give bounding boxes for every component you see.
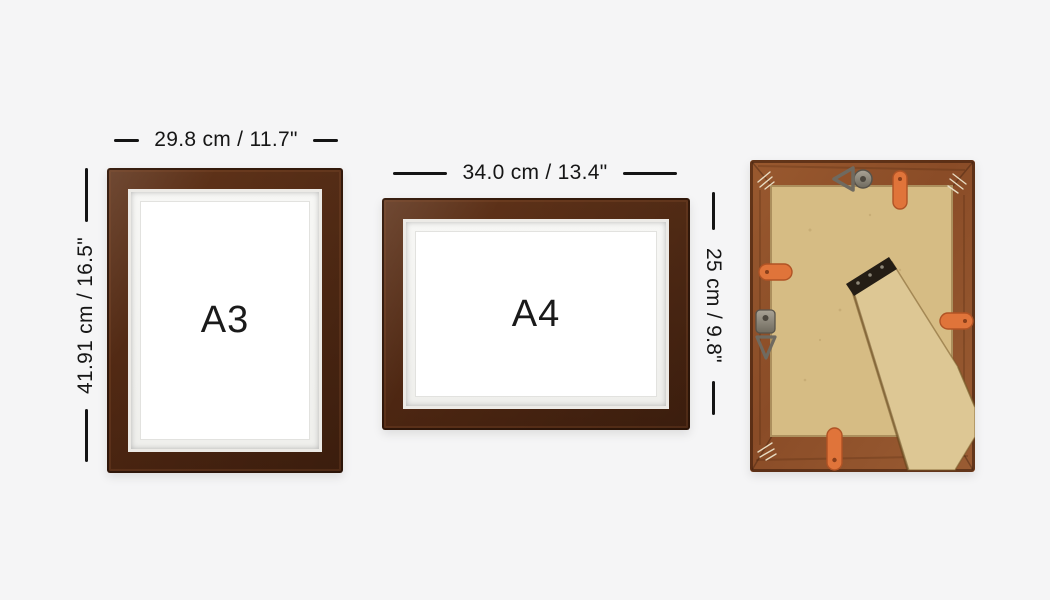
dimension-tick-top <box>712 192 715 230</box>
a3-frame-mat: A3 <box>131 192 319 449</box>
back-frame-graphic <box>750 160 975 472</box>
a4-frame: A4 <box>382 198 690 430</box>
a4-frame-mat: A4 <box>406 222 666 406</box>
dimension-dash-right <box>313 139 338 142</box>
a3-height-dimension: 41.91 cm / 16.5" <box>71 168 101 462</box>
a3-print-area: A3 <box>140 201 310 440</box>
a3-size-label: A3 <box>201 299 249 342</box>
a4-width-dimension: 34.0 cm / 13.4" <box>370 159 700 187</box>
a3-width-dimension: 29.8 cm / 11.7" <box>95 126 357 154</box>
a3-width-dimension-label: 29.8 cm / 11.7" <box>154 128 297 152</box>
a4-size-label: A4 <box>512 293 560 336</box>
dimension-dash-right <box>623 172 677 175</box>
dimension-tick-bottom <box>85 409 88 462</box>
flexi-clip-left <box>759 264 792 280</box>
a3-frame: A3 <box>107 168 343 473</box>
dimension-tick-top <box>85 168 88 222</box>
flexi-clip-bottom <box>827 428 842 470</box>
product-dimension-diagram: 29.8 cm / 11.7" 41.91 cm / 16.5" A3 34.0… <box>0 0 1050 600</box>
a3-height-dimension-label: 41.91 cm / 16.5" <box>74 222 98 409</box>
a4-print-area: A4 <box>415 231 657 397</box>
flexi-clip-right <box>940 313 973 329</box>
dimension-tick-bottom <box>712 381 715 415</box>
back-frame <box>750 160 975 472</box>
flexi-clip-top-right <box>893 171 907 209</box>
a4-height-dimension-label: 25 cm / 9.8" <box>701 230 725 381</box>
a4-width-dimension-label: 34.0 cm / 13.4" <box>462 161 607 185</box>
a3-frame-rebate: A3 <box>128 189 322 452</box>
a4-height-dimension: 25 cm / 9.8" <box>698 192 728 415</box>
dimension-dash-left <box>393 172 447 175</box>
dimension-dash-left <box>114 139 139 142</box>
a4-frame-rebate: A4 <box>403 219 669 409</box>
